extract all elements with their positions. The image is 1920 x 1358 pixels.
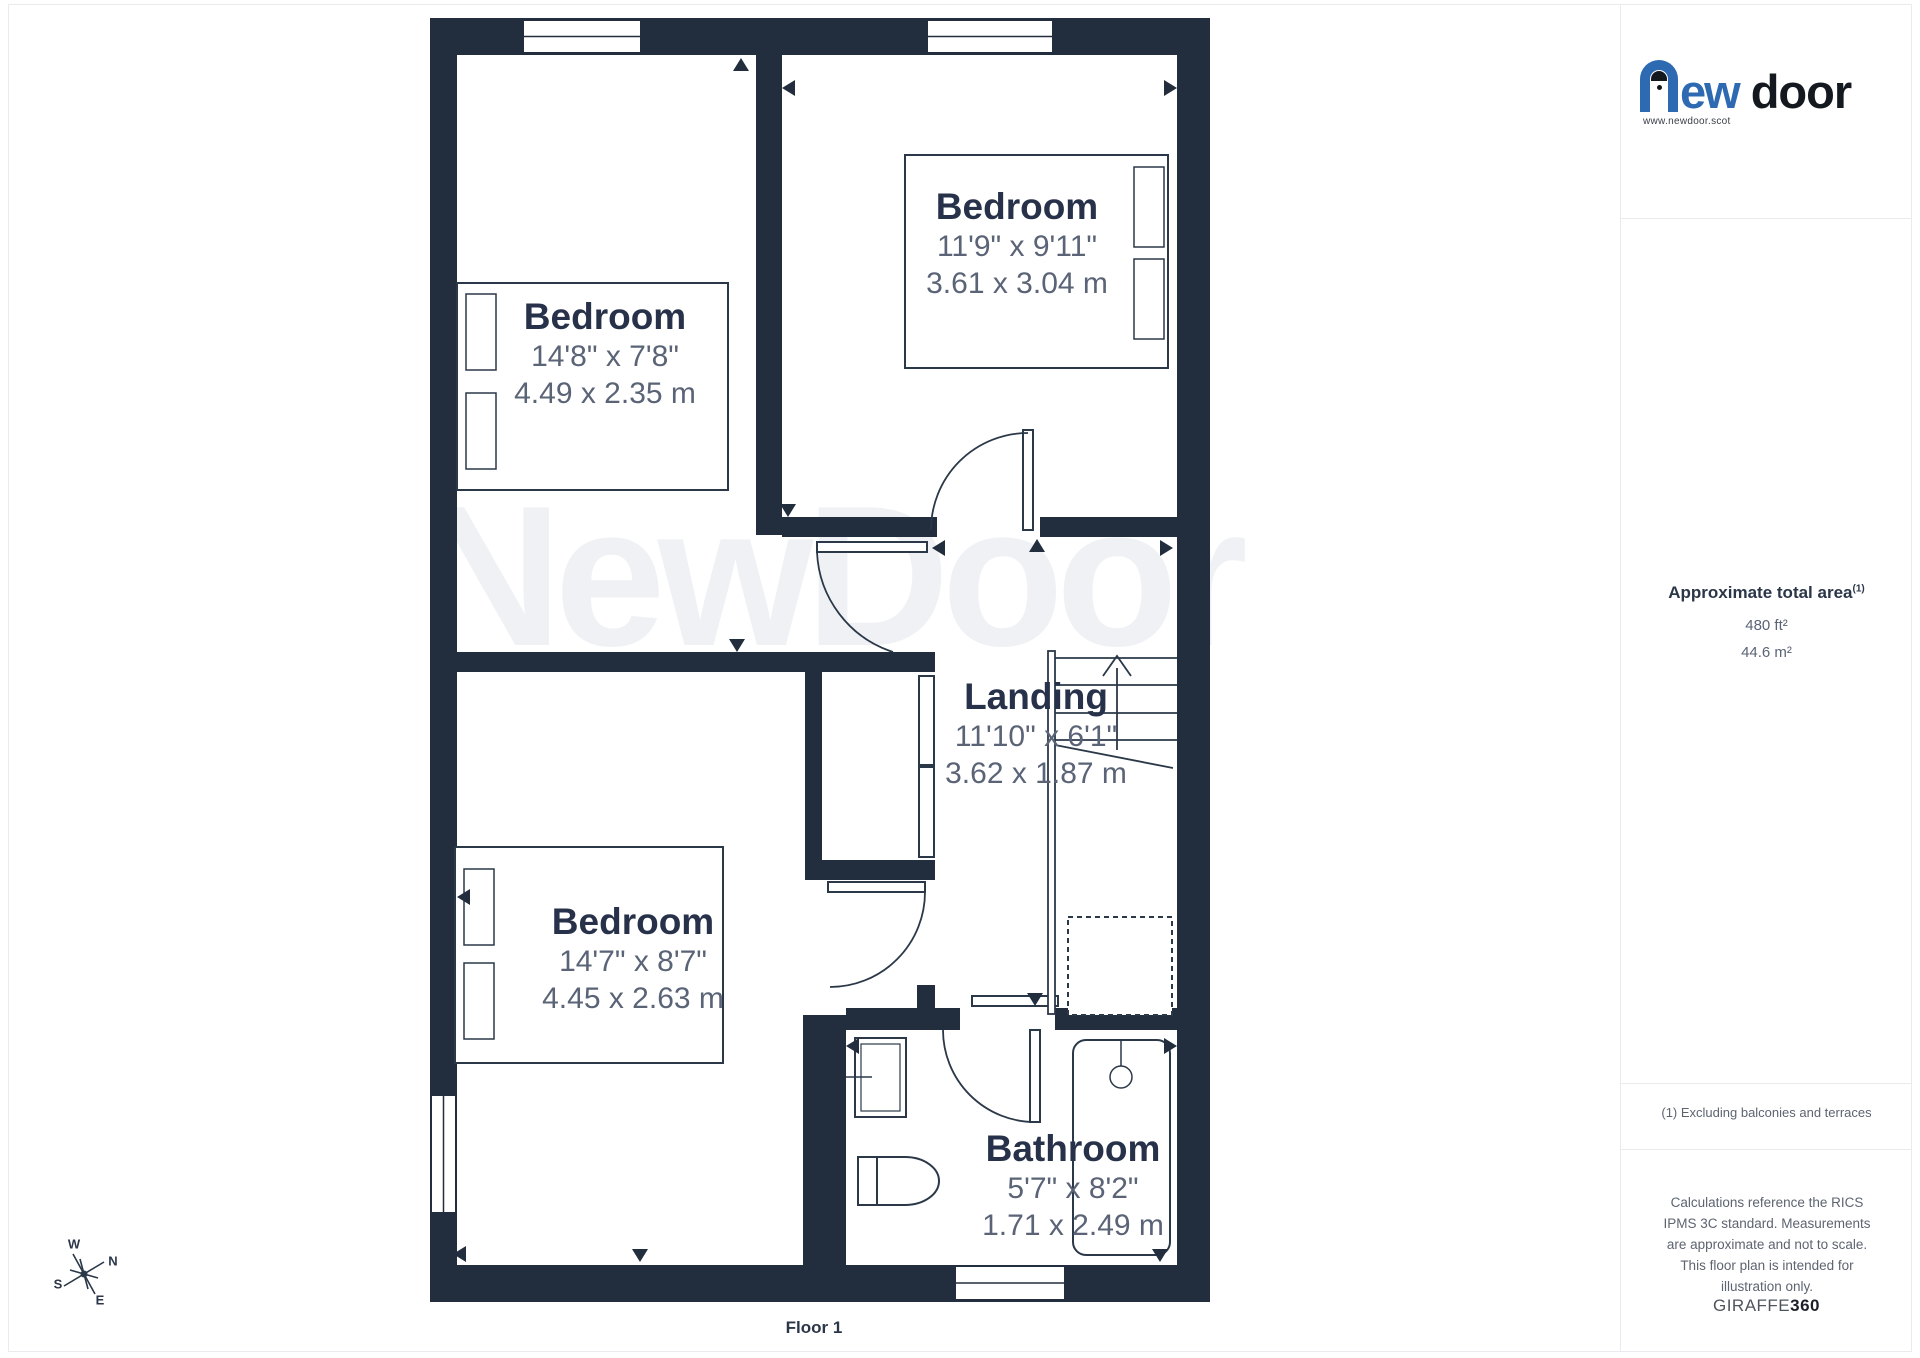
door-knob-dot <box>1657 85 1662 90</box>
balcony-footnote: (1) Excluding balconies and terraces <box>1621 1105 1912 1120</box>
compass-south-label: S <box>54 1277 63 1292</box>
room-name: Bedroom <box>857 186 1177 228</box>
logo-text-door: door <box>1751 72 1851 112</box>
room-label-landing: Landing 11'10" x 6'1" 3.62 x 1.87 m <box>876 676 1196 792</box>
door <box>943 996 1058 1122</box>
room-name: Landing <box>876 676 1196 718</box>
area-title: Approximate total area <box>1668 583 1852 602</box>
giraffe-360-text: 360 <box>1790 1296 1820 1315</box>
compass-east-label: E <box>96 1293 105 1308</box>
window <box>523 20 641 53</box>
newdoor-logo: ew door <box>1640 54 1851 112</box>
room-name: Bathroom <box>913 1128 1233 1170</box>
room-size-imperial: 11'9" x 9'11" <box>857 228 1177 265</box>
newdoor-door-arch-icon <box>1640 60 1678 112</box>
window <box>431 1095 456 1213</box>
compass-north-label: N <box>108 1254 117 1269</box>
area-sqft-value: 480 ft² <box>1621 617 1912 634</box>
room-name: Bedroom <box>473 901 793 943</box>
room-size-imperial: 5'7" x 8'2" <box>913 1170 1233 1207</box>
room-label-bedroom-3: Bedroom 14'7" x 8'7" 4.45 x 2.63 m <box>473 901 793 1017</box>
floor-label: Floor 1 <box>664 1318 964 1338</box>
area-sqm-value: 44.6 m² <box>1621 644 1912 661</box>
room-size-metric: 4.49 x 2.35 m <box>445 375 765 412</box>
window <box>955 1266 1065 1300</box>
door <box>931 430 1033 530</box>
giraffe360-brand: GIRAFFE360 <box>1621 1296 1912 1316</box>
room-size-imperial: 14'7" x 8'7" <box>473 943 793 980</box>
room-size-metric: 4.45 x 2.63 m <box>473 980 793 1017</box>
giraffe-text: GIRAFFE <box>1713 1296 1790 1315</box>
rics-disclaimer: Calculations reference the RICS IPMS 3C … <box>1656 1192 1878 1297</box>
window <box>927 20 1053 53</box>
room-label-bathroom: Bathroom 5'7" x 8'2" 1.71 x 2.49 m <box>913 1128 1233 1244</box>
room-name: Bedroom <box>445 296 765 338</box>
room-label-bedroom-2: Bedroom 11'9" x 9'11" 3.61 x 3.04 m <box>857 186 1177 302</box>
hatch-dashed-area <box>1068 917 1172 1015</box>
floorplan-sheet: NewDoor <box>0 0 1920 1358</box>
logo-text-new: ew <box>1680 72 1739 112</box>
door <box>828 882 925 987</box>
room-label-bedroom-1: Bedroom 14'8" x 7'8" 4.49 x 2.35 m <box>445 296 765 412</box>
area-title-row: Approximate total area(1) <box>1621 583 1912 603</box>
website-url: www.newdoor.scot <box>1643 116 1731 127</box>
door-arch-fill <box>1651 71 1667 81</box>
room-size-imperial: 14'8" x 7'8" <box>445 338 765 375</box>
room-size-imperial: 11'10" x 6'1" <box>876 718 1196 755</box>
area-title-superscript: (1) <box>1853 584 1865 595</box>
room-size-metric: 3.62 x 1.87 m <box>876 755 1196 792</box>
door <box>817 542 927 652</box>
compass-icon <box>64 1254 104 1294</box>
room-size-metric: 3.61 x 3.04 m <box>857 265 1177 302</box>
room-size-metric: 1.71 x 2.49 m <box>913 1207 1233 1244</box>
compass-west-label: W <box>68 1237 80 1252</box>
